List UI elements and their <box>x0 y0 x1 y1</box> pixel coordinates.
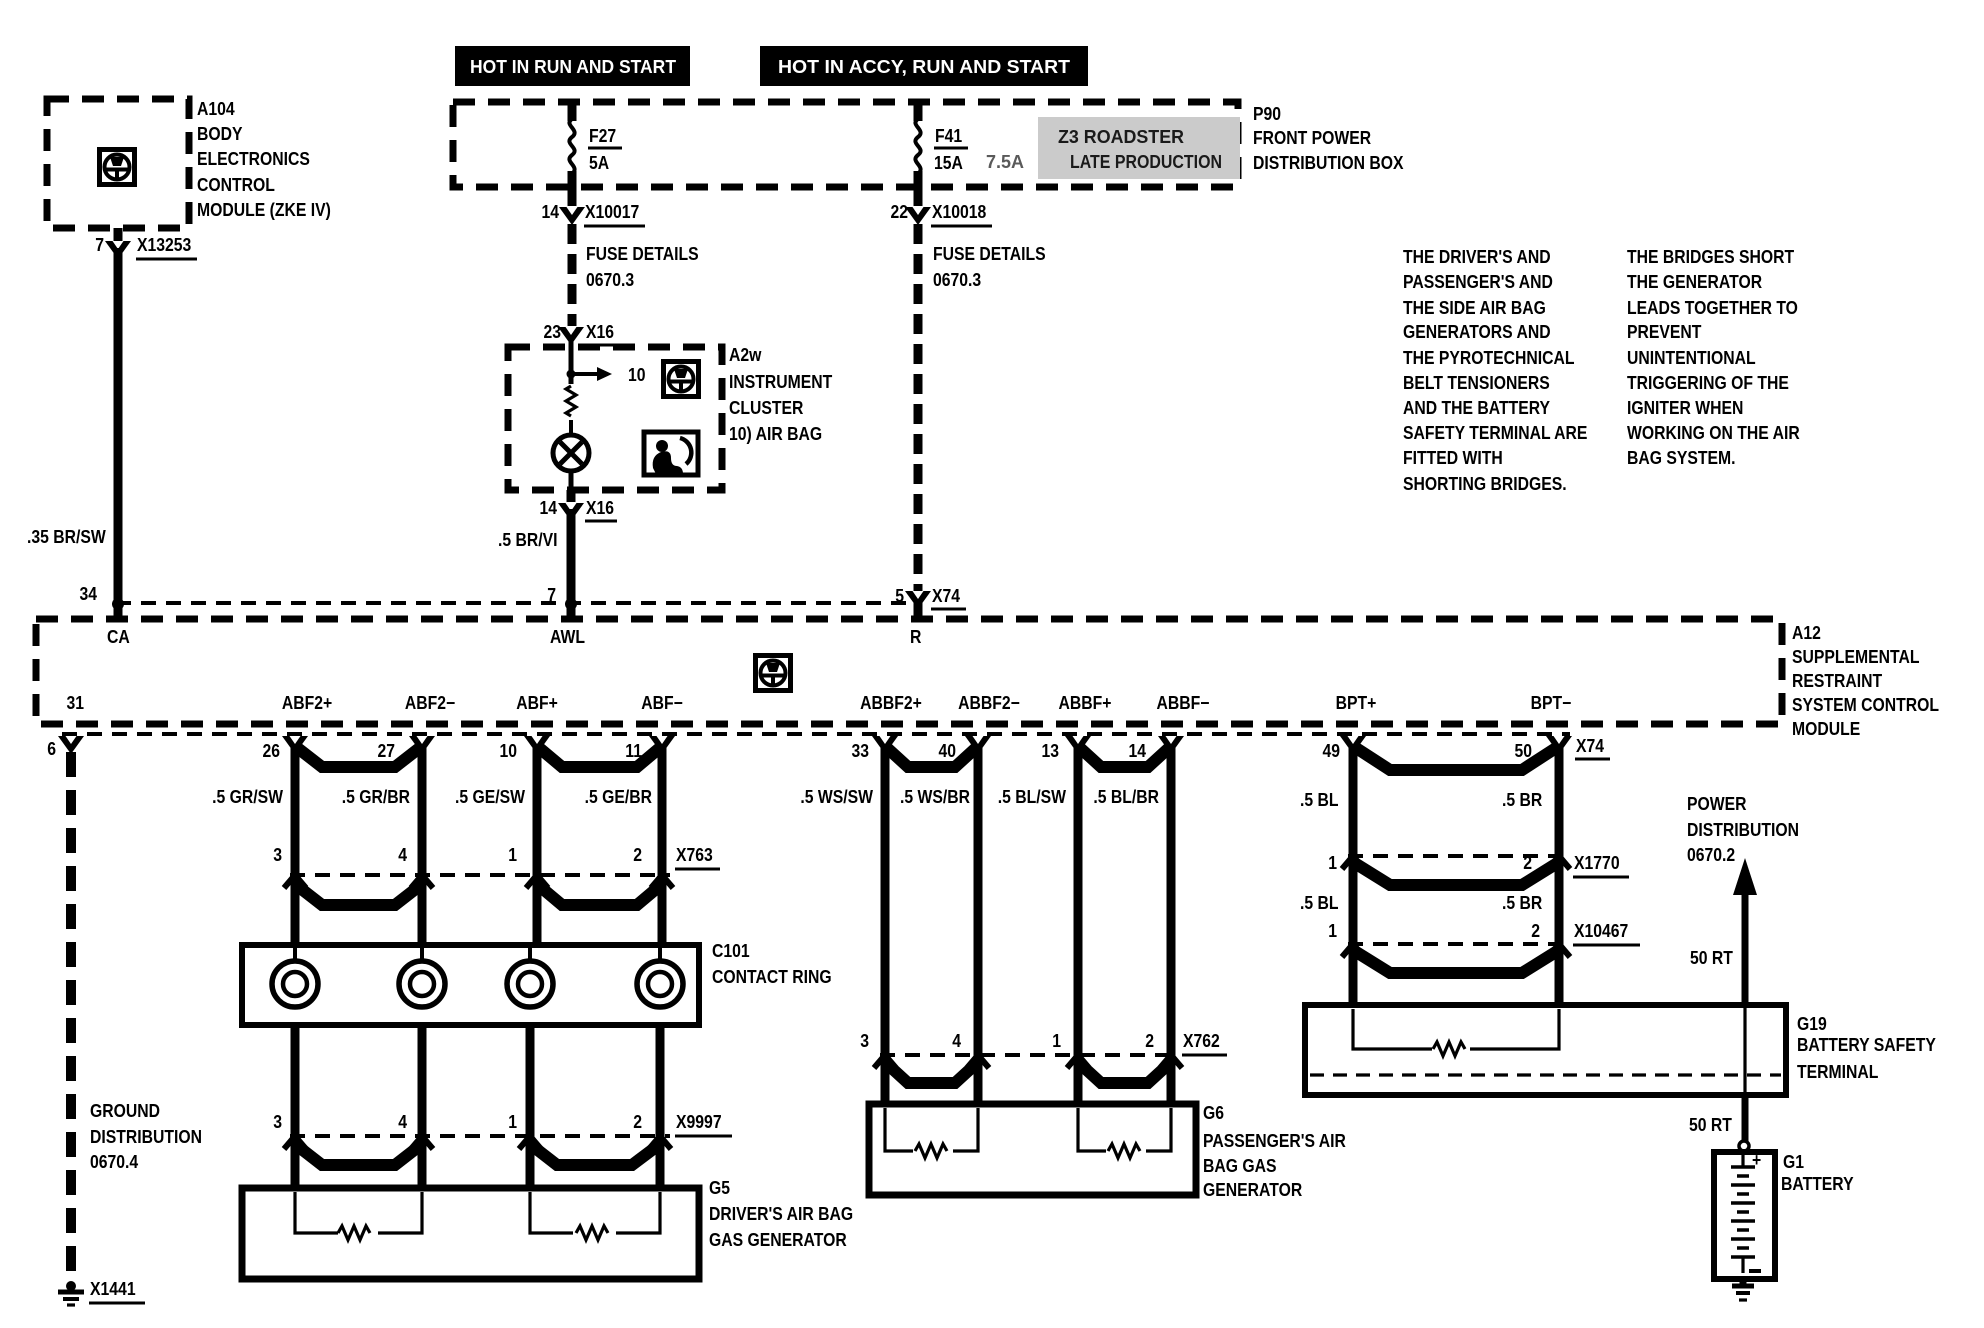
svg-text:LEADS TOGETHER TO: LEADS TOGETHER TO <box>1627 298 1798 318</box>
svg-text:27: 27 <box>378 741 396 761</box>
svg-text:DISTRIBUTION BOX: DISTRIBUTION BOX <box>1253 153 1404 173</box>
svg-text:CONTACT RING: CONTACT RING <box>712 967 832 987</box>
svg-text:INSTRUMENT: INSTRUMENT <box>729 372 832 392</box>
svg-text:.5 GE/BR: .5 GE/BR <box>585 787 652 807</box>
svg-text:.5 WS/SW: .5 WS/SW <box>800 787 873 807</box>
svg-text:AWL: AWL <box>550 627 585 647</box>
svg-text:BAG SYSTEM.: BAG SYSTEM. <box>1627 448 1736 468</box>
svg-text:GENERATORS AND: GENERATORS AND <box>1403 322 1551 342</box>
svg-text:A104: A104 <box>197 99 235 119</box>
svg-text:1: 1 <box>508 845 517 865</box>
svg-text:P90: P90 <box>1253 104 1281 124</box>
svg-text:26: 26 <box>263 741 281 761</box>
svg-text:49: 49 <box>1323 741 1341 761</box>
svg-text:5A: 5A <box>589 153 609 173</box>
svg-text:6: 6 <box>47 739 56 759</box>
svg-text:X1770: X1770 <box>1574 853 1620 873</box>
svg-text:MODULE: MODULE <box>1792 719 1860 739</box>
svg-text:.5 BL: .5 BL <box>1300 790 1339 810</box>
svg-text:ABBF+: ABBF+ <box>1059 693 1112 713</box>
svg-text:BODY: BODY <box>197 124 243 144</box>
svg-text:G1: G1 <box>1783 1152 1804 1172</box>
svg-text:FITTED WITH: FITTED WITH <box>1403 448 1503 468</box>
svg-text:X10017: X10017 <box>585 202 639 222</box>
svg-text:RESTRAINT: RESTRAINT <box>1792 671 1882 691</box>
svg-text:.5 BL/SW: .5 BL/SW <box>998 787 1066 807</box>
svg-text:G19: G19 <box>1797 1014 1827 1034</box>
svg-text:HOT IN RUN AND START: HOT IN RUN AND START <box>470 57 676 77</box>
svg-text:2: 2 <box>1145 1031 1154 1051</box>
svg-text:SAFETY TERMINAL ARE: SAFETY TERMINAL ARE <box>1403 423 1587 443</box>
svg-text:X10018: X10018 <box>932 202 986 222</box>
svg-text:34: 34 <box>80 584 98 604</box>
svg-text:WORKING ON THE AIR: WORKING ON THE AIR <box>1627 423 1800 443</box>
svg-text:ABF+: ABF+ <box>516 693 558 713</box>
svg-text:A2w: A2w <box>729 345 762 365</box>
svg-text:TRIGGERING OF THE: TRIGGERING OF THE <box>1627 373 1789 393</box>
svg-text:BATTERY SAFETY: BATTERY SAFETY <box>1797 1035 1936 1055</box>
svg-text:THE DRIVER'S AND: THE DRIVER'S AND <box>1403 247 1551 267</box>
svg-text:ABBF−: ABBF− <box>1157 693 1210 713</box>
svg-text:GROUND: GROUND <box>90 1101 160 1121</box>
svg-text:0670.3: 0670.3 <box>933 270 981 290</box>
svg-text:ABF2+: ABF2+ <box>282 693 332 713</box>
svg-text:LATE PRODUCTION: LATE PRODUCTION <box>1070 152 1222 172</box>
svg-text:0670.2: 0670.2 <box>1687 845 1735 865</box>
svg-text:X10467: X10467 <box>1574 921 1628 941</box>
svg-text:23: 23 <box>544 322 562 342</box>
svg-text:DISTRIBUTION: DISTRIBUTION <box>1687 820 1799 840</box>
svg-text:50 RT: 50 RT <box>1689 1115 1732 1135</box>
svg-text:G5: G5 <box>709 1178 730 1198</box>
svg-text:BPT+: BPT+ <box>1336 693 1377 713</box>
svg-text:1: 1 <box>1052 1031 1061 1051</box>
svg-text:2: 2 <box>1531 921 1540 941</box>
svg-text:X16: X16 <box>586 322 614 342</box>
svg-text:.5 BR/VI: .5 BR/VI <box>498 530 558 550</box>
svg-text:G6: G6 <box>1203 1103 1224 1123</box>
svg-text:.5 BR: .5 BR <box>1502 790 1542 810</box>
svg-text:1: 1 <box>1328 853 1337 873</box>
svg-text:F27: F27 <box>589 126 616 146</box>
svg-text:PASSENGER'S AIR: PASSENGER'S AIR <box>1203 1131 1346 1151</box>
svg-text:HOT IN ACCY, RUN AND START: HOT IN ACCY, RUN AND START <box>778 57 1070 77</box>
svg-text:3: 3 <box>860 1031 869 1051</box>
svg-text:POWER: POWER <box>1687 794 1747 814</box>
svg-text:31: 31 <box>67 693 85 713</box>
svg-text:A12: A12 <box>1792 623 1821 643</box>
svg-text:.5 GR/BR: .5 GR/BR <box>342 787 410 807</box>
svg-text:ELECTRONICS: ELECTRONICS <box>197 149 310 169</box>
svg-text:FUSE DETAILS: FUSE DETAILS <box>933 244 1046 264</box>
svg-text:AND THE BATTERY: AND THE BATTERY <box>1403 398 1550 418</box>
svg-text:3: 3 <box>273 845 282 865</box>
svg-text:UNINTENTIONAL: UNINTENTIONAL <box>1627 348 1756 368</box>
svg-text:X763: X763 <box>676 845 713 865</box>
svg-text:X1441: X1441 <box>90 1279 136 1299</box>
svg-text:1: 1 <box>508 1112 517 1132</box>
svg-text:CA: CA <box>107 627 130 647</box>
svg-text:IGNITER WHEN: IGNITER WHEN <box>1627 398 1743 418</box>
svg-text:THE PYROTECHNICAL: THE PYROTECHNICAL <box>1403 348 1575 368</box>
svg-text:DISTRIBUTION: DISTRIBUTION <box>90 1127 202 1147</box>
svg-text:ABBF2+: ABBF2+ <box>860 693 922 713</box>
svg-text:ABBF2−: ABBF2− <box>958 693 1020 713</box>
svg-text:BATTERY: BATTERY <box>1781 1174 1854 1194</box>
svg-text:THE GENERATOR: THE GENERATOR <box>1627 272 1762 292</box>
svg-text:X74: X74 <box>932 586 960 606</box>
svg-text:SUPPLEMENTAL: SUPPLEMENTAL <box>1792 647 1920 667</box>
svg-text:14: 14 <box>1129 741 1147 761</box>
svg-text:X13253: X13253 <box>137 235 191 255</box>
svg-text:BAG GAS: BAG GAS <box>1203 1156 1277 1176</box>
svg-text:BELT TENSIONERS: BELT TENSIONERS <box>1403 373 1550 393</box>
svg-text:CLUSTER: CLUSTER <box>729 398 803 418</box>
svg-text:GENERATOR: GENERATOR <box>1203 1180 1302 1200</box>
svg-text:.5 BL: .5 BL <box>1300 893 1339 913</box>
svg-text:Z3 ROADSTER: Z3 ROADSTER <box>1058 127 1184 147</box>
svg-text:.5 BL/BR: .5 BL/BR <box>1093 787 1159 807</box>
svg-text:.5 BR: .5 BR <box>1502 893 1542 913</box>
svg-text:FRONT POWER: FRONT POWER <box>1253 128 1371 148</box>
svg-text:7: 7 <box>95 235 104 255</box>
svg-text:50 RT: 50 RT <box>1690 948 1733 968</box>
svg-text:.35 BR/SW: .35 BR/SW <box>27 527 106 547</box>
svg-text:40: 40 <box>939 741 957 761</box>
svg-text:1: 1 <box>1328 921 1337 941</box>
svg-text:10: 10 <box>500 741 518 761</box>
svg-text:ABF−: ABF− <box>641 693 683 713</box>
svg-text:50: 50 <box>1515 741 1533 761</box>
svg-text:SHORTING BRIDGES.: SHORTING BRIDGES. <box>1403 474 1567 494</box>
svg-text:THE BRIDGES SHORT: THE BRIDGES SHORT <box>1627 247 1794 267</box>
svg-text:MODULE (ZKE IV): MODULE (ZKE IV) <box>197 200 331 220</box>
svg-text:4: 4 <box>398 1112 407 1132</box>
svg-text:15A: 15A <box>934 153 963 173</box>
svg-text:7.5A: 7.5A <box>986 152 1024 172</box>
svg-text:2: 2 <box>633 845 642 865</box>
svg-text:10: 10 <box>628 365 646 385</box>
svg-text:14: 14 <box>542 202 560 222</box>
svg-text:0670.3: 0670.3 <box>586 270 634 290</box>
svg-text:2: 2 <box>633 1112 642 1132</box>
svg-text:THE SIDE AIR BAG: THE SIDE AIR BAG <box>1403 298 1546 318</box>
svg-text:X16: X16 <box>586 498 614 518</box>
svg-text:ABF2−: ABF2− <box>405 693 455 713</box>
svg-text:4: 4 <box>952 1031 961 1051</box>
svg-text:TERMINAL: TERMINAL <box>1797 1062 1878 1082</box>
svg-text:GAS GENERATOR: GAS GENERATOR <box>709 1230 847 1250</box>
svg-text:FUSE DETAILS: FUSE DETAILS <box>586 244 699 264</box>
svg-text:C101: C101 <box>712 941 750 961</box>
svg-text:X762: X762 <box>1183 1031 1220 1051</box>
svg-text:X9997: X9997 <box>676 1112 722 1132</box>
svg-text:3: 3 <box>273 1112 282 1132</box>
svg-text:R: R <box>910 627 921 647</box>
svg-text:14: 14 <box>540 498 558 518</box>
svg-text:4: 4 <box>398 845 407 865</box>
svg-text:.5 WS/BR: .5 WS/BR <box>900 787 970 807</box>
svg-text:X74: X74 <box>1576 736 1604 756</box>
svg-text:.5 GE/SW: .5 GE/SW <box>455 787 525 807</box>
svg-text:13: 13 <box>1042 741 1060 761</box>
svg-text:BPT−: BPT− <box>1531 693 1572 713</box>
svg-text:0670.4: 0670.4 <box>90 1152 138 1172</box>
svg-text:PASSENGER'S AND: PASSENGER'S AND <box>1403 272 1553 292</box>
svg-text:33: 33 <box>852 741 870 761</box>
svg-text:.5 GR/SW: .5 GR/SW <box>212 787 283 807</box>
svg-text:CONTROL: CONTROL <box>197 175 275 195</box>
svg-text:F41: F41 <box>935 126 962 146</box>
svg-text:10) AIR BAG: 10) AIR BAG <box>729 424 822 444</box>
svg-text:DRIVER'S AIR BAG: DRIVER'S AIR BAG <box>709 1204 853 1224</box>
svg-text:PREVENT: PREVENT <box>1627 322 1701 342</box>
svg-text:SYSTEM CONTROL: SYSTEM CONTROL <box>1792 695 1939 715</box>
svg-text:22: 22 <box>891 202 909 222</box>
